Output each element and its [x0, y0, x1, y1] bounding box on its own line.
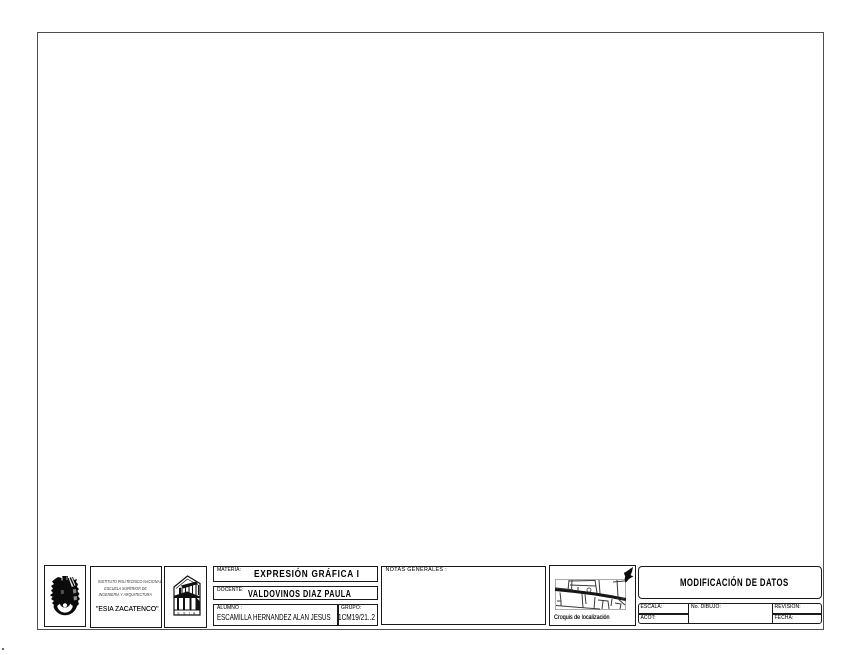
svg-text:E.S.I.A: E.S.I.A: [177, 611, 196, 615]
